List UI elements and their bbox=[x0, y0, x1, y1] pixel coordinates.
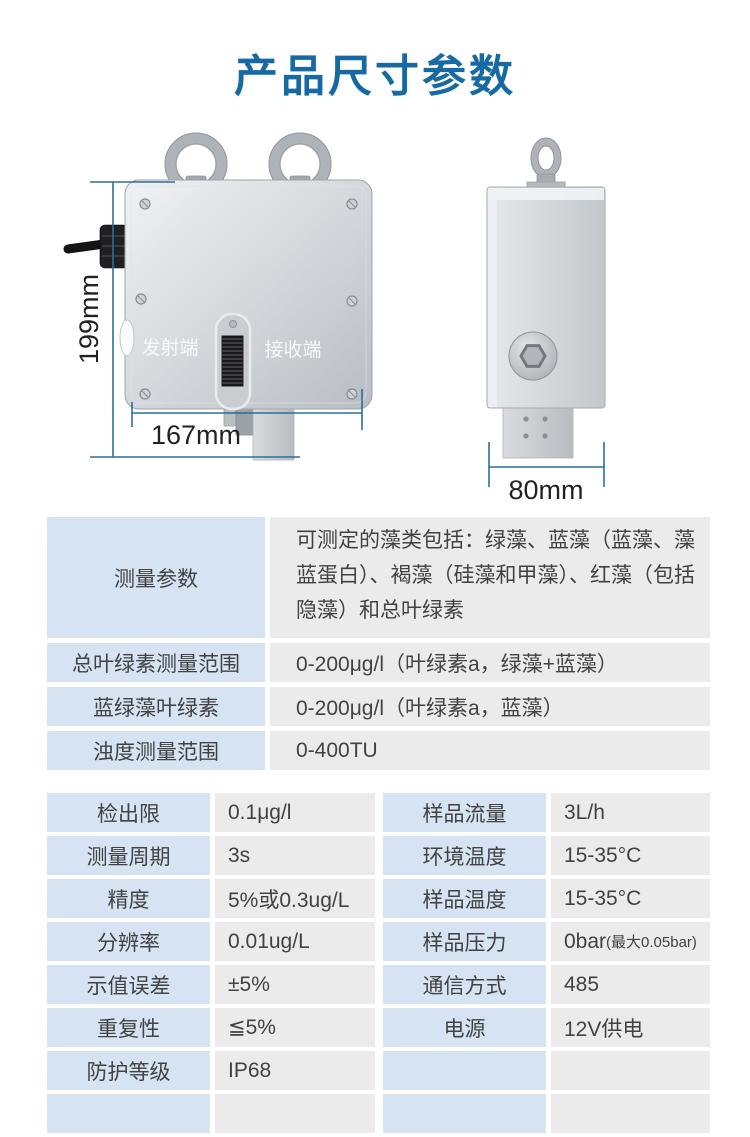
spec-value-text: 485 bbox=[564, 973, 599, 997]
spec-label-cell: 重复性 bbox=[47, 1008, 210, 1047]
wiper-notch bbox=[216, 314, 250, 409]
table-row: 蓝绿藻叶绿素 0-200μg/l（叶绿素a，蓝藻） bbox=[47, 687, 710, 726]
spec-label-cell: 精度 bbox=[47, 879, 210, 918]
spec-table: 检出限 0.1μg/l 样品流量 3L/h 测量周期 3s 环境温度 15-35… bbox=[47, 793, 710, 1137]
lifting-ring-icon bbox=[527, 138, 565, 189]
spec-value-cell: 15-35°C bbox=[551, 879, 710, 918]
param-label-cell: 浊度测量范围 bbox=[47, 731, 265, 770]
spec-value-cell bbox=[551, 1094, 710, 1133]
cable bbox=[68, 244, 104, 249]
spec-value-cell: IP68 bbox=[215, 1051, 375, 1090]
hex-knob-icon bbox=[509, 332, 557, 380]
spec-label-cell bbox=[383, 1051, 546, 1090]
table-row: 示值误差 ±5% 通信方式 485 bbox=[47, 965, 710, 1004]
param-value-cell: 可测定的藻类包括：绿藻、蓝藻（蓝藻、藻蓝蛋白）、褐藻（硅藻和甲藻）、红藻（包括隐… bbox=[270, 517, 710, 638]
spec-label-cell: 样品压力 bbox=[383, 922, 546, 961]
spec-label-cell: 样品温度 bbox=[383, 879, 546, 918]
spec-label-cell: 样品流量 bbox=[383, 793, 546, 832]
product-dimension-figure: 发射端 接收端 199mm 167mm bbox=[0, 118, 750, 513]
spec-value-cell bbox=[551, 1051, 710, 1090]
param-value-cell: 0-200μg/l（叶绿素a，绿藻+蓝藻） bbox=[270, 643, 710, 682]
table-row bbox=[47, 1094, 710, 1133]
spec-value-cell: 12V供电 bbox=[551, 1008, 710, 1047]
spec-label-cell: 电源 bbox=[383, 1008, 546, 1047]
spec-value-cell: ≦5% bbox=[215, 1008, 375, 1047]
spec-value-cell: ±5% bbox=[215, 965, 375, 1004]
spec-label-cell: 通信方式 bbox=[383, 965, 546, 1004]
side-port bbox=[120, 320, 134, 356]
spec-value-cell: 0bar(最大0.05bar) bbox=[551, 922, 710, 961]
measurement-range-table: 测量参数 可测定的藻类包括：绿藻、蓝藻（蓝藻、藻蓝蛋白）、褐藻（硅藻和甲藻）、红… bbox=[47, 517, 710, 775]
param-value-cell: 0-200μg/l（叶绿素a，蓝藻） bbox=[270, 687, 710, 726]
spec-label-cell bbox=[47, 1094, 210, 1133]
spec-label-cell: 检出限 bbox=[47, 793, 210, 832]
width-dim-label: 167mm bbox=[151, 420, 241, 450]
table-row: 测量周期 3s 环境温度 15-35°C bbox=[47, 836, 710, 875]
device-side-view: 80mm bbox=[487, 138, 605, 505]
spec-label-cell: 示值误差 bbox=[47, 965, 210, 1004]
mounting-bracket-side bbox=[503, 408, 573, 458]
table-row: 总叶绿素测量范围 0-200μg/l（叶绿素a，绿藻+蓝藻） bbox=[47, 643, 710, 682]
transmitter-label: 发射端 bbox=[141, 337, 198, 359]
spec-value-cell: 0.01ug/L bbox=[215, 922, 375, 961]
param-value-cell: 0-400TU bbox=[270, 731, 710, 770]
spec-label-cell: 环境温度 bbox=[383, 836, 546, 875]
spec-value-text: 3L/h bbox=[564, 801, 605, 825]
param-label-cell: 测量参数 bbox=[47, 517, 265, 638]
table-row: 浊度测量范围 0-400TU bbox=[47, 731, 710, 770]
param-label-cell: 蓝绿藻叶绿素 bbox=[47, 687, 265, 726]
table-row: 检出限 0.1μg/l 样品流量 3L/h bbox=[47, 793, 710, 832]
table-row: 分辨率 0.01ug/L 样品压力 0bar(最大0.05bar) bbox=[47, 922, 710, 961]
spec-value-cell: 3s bbox=[215, 836, 375, 875]
spec-value-cell: 5%或0.3ug/L bbox=[215, 879, 375, 918]
spec-value-cell: 485 bbox=[551, 965, 710, 1004]
param-label-cell: 总叶绿素测量范围 bbox=[47, 643, 265, 682]
receiver-label: 接收端 bbox=[264, 339, 321, 361]
cable-gland bbox=[100, 225, 128, 268]
spec-value-text: 15-35°C bbox=[564, 844, 641, 868]
spec-value-note: (最大0.05bar) bbox=[606, 931, 697, 952]
table-row: 重复性 ≦5% 电源 12V供电 bbox=[47, 1008, 710, 1047]
device-front-view: 发射端 接收端 199mm 167mm bbox=[68, 133, 372, 460]
spec-value-cell bbox=[215, 1094, 375, 1133]
wiper-brush bbox=[222, 336, 243, 386]
spec-label-cell: 分辨率 bbox=[47, 922, 210, 961]
table-row: 精度 5%或0.3ug/L 样品温度 15-35°C bbox=[47, 879, 710, 918]
spec-label-cell bbox=[383, 1094, 546, 1133]
table-row: 测量参数 可测定的藻类包括：绿藻、蓝藻（蓝藻、藻蓝蛋白）、褐藻（硅藻和甲藻）、红… bbox=[47, 517, 710, 638]
page-title: 产品尺寸参数 bbox=[0, 40, 750, 104]
spec-label-cell: 防护等级 bbox=[47, 1051, 210, 1090]
spec-value-cell: 3L/h bbox=[551, 793, 710, 832]
height-dim-label: 199mm bbox=[74, 274, 104, 364]
spec-value-text: 15-35°C bbox=[564, 887, 641, 911]
spec-value-cell: 0.1μg/l bbox=[215, 793, 375, 832]
spec-value-text: 12V供电 bbox=[564, 1013, 643, 1043]
spec-value-text: 0bar bbox=[564, 930, 606, 954]
spec-label-cell: 测量周期 bbox=[47, 836, 210, 875]
spec-value-cell: 15-35°C bbox=[551, 836, 710, 875]
table-row: 防护等级 IP68 bbox=[47, 1051, 710, 1090]
depth-dim-label: 80mm bbox=[508, 475, 583, 505]
